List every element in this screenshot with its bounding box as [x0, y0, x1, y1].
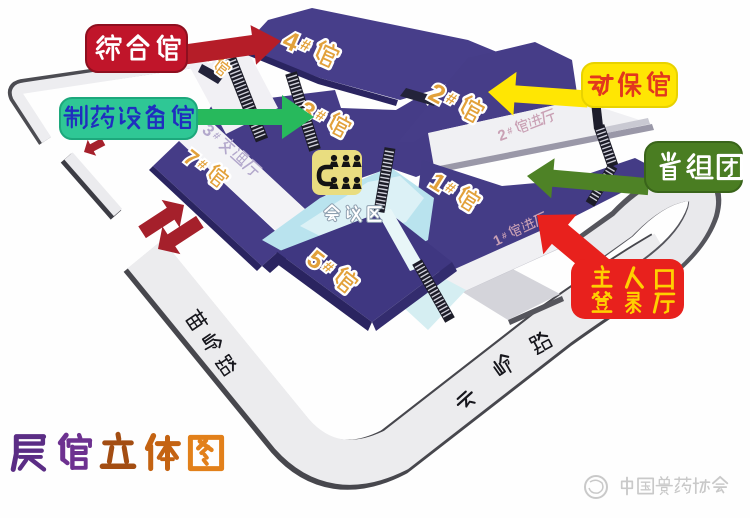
svg-text:口: 口 — [652, 267, 676, 294]
